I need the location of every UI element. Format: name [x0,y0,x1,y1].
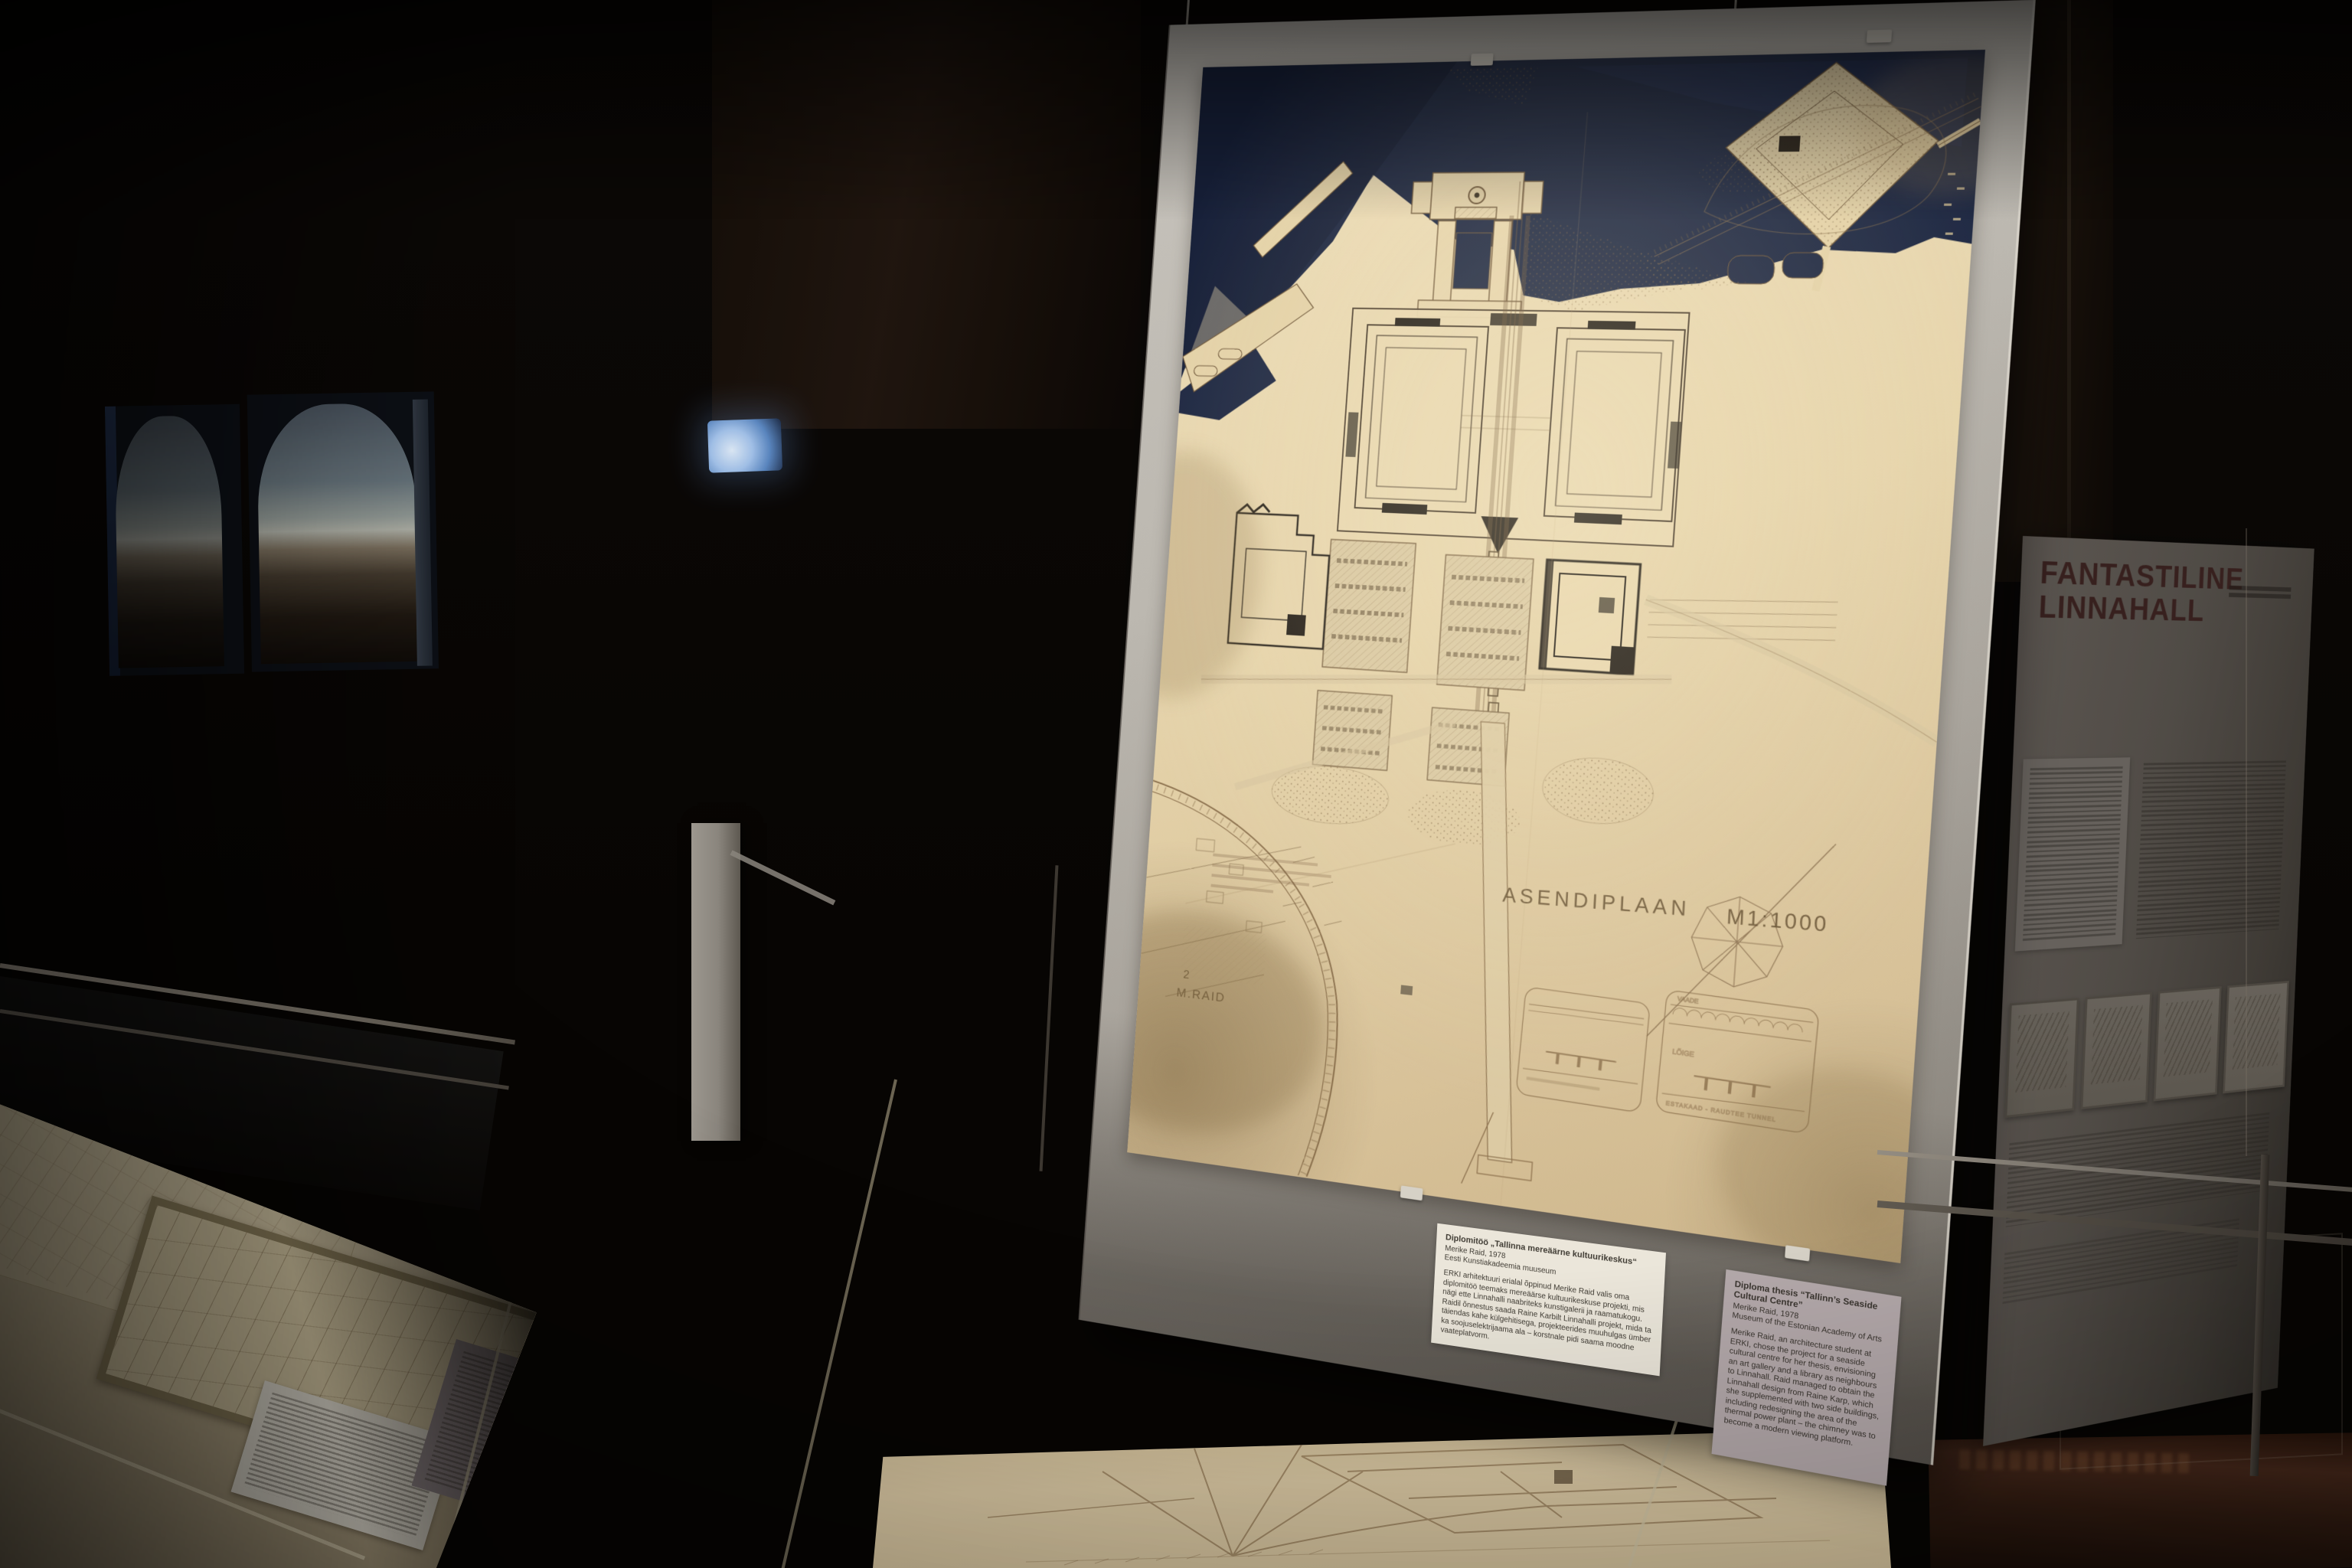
thumbnail-frame [2223,981,2288,1093]
site-plan-drawing: ASENDIPLAAN M1:1000 2 M.RAID [1127,50,1985,1263]
thumbnail-frame [2004,998,2079,1118]
caption-card-english: Diploma thesis “Tallinn’s Seaside Cultur… [1711,1269,1901,1486]
library-building [1540,560,1641,675]
panel-title-line1: FANTASTILINE [2040,555,2245,596]
detail-view-label: VAADE [1677,995,1699,1005]
framed-render-right [247,391,439,671]
thumbnail-frame [2153,986,2222,1101]
hanging-rod [2246,528,2247,1156]
paper-clip [1867,29,1892,42]
plan-scale: M1:1000 [1726,906,1829,937]
wall-artworks [105,391,447,688]
panel-text-card [2015,757,2130,951]
panel-body-blur [2136,760,2286,939]
blurred-text [2023,766,2123,942]
hanging-board: ASENDIPLAAN M1:1000 2 M.RAID [1079,0,2036,1465]
caption-en-body: Merike Raid, an architecture student at … [1723,1327,1886,1453]
door-frame-edge [2067,0,2071,597]
panel-title-line2: LINNAHALL [2038,590,2243,629]
panel-subheading-blur [2229,583,2292,602]
framed-render-left [105,404,244,676]
display-stand-leg [691,823,740,1141]
illuminated-sign [707,418,782,472]
legend-block [1210,853,1331,899]
asendiplaan-artwork: ASENDIPLAAN M1:1000 2 M.RAID [1127,50,1985,1263]
arch-city-view [114,415,224,668]
fantastiline-linnahall-panel: FANTASTILINE LINNAHALL [1983,536,2314,1446]
detail-section-label: LÕIGE [1672,1047,1695,1059]
thumbnail-frame [2080,992,2151,1110]
plan-title: ASENDIPLAAN [1502,884,1691,920]
compass-rose-icon [1647,829,1836,1057]
wooden-wall [712,0,1141,429]
arch-city-view [256,403,419,665]
museum-exhibition-photo: FANTASTILINE LINNAHALL [0,0,2352,1568]
paper-clip [1471,54,1494,66]
panel-title: FANTASTILINE LINNAHALL [2038,555,2245,629]
